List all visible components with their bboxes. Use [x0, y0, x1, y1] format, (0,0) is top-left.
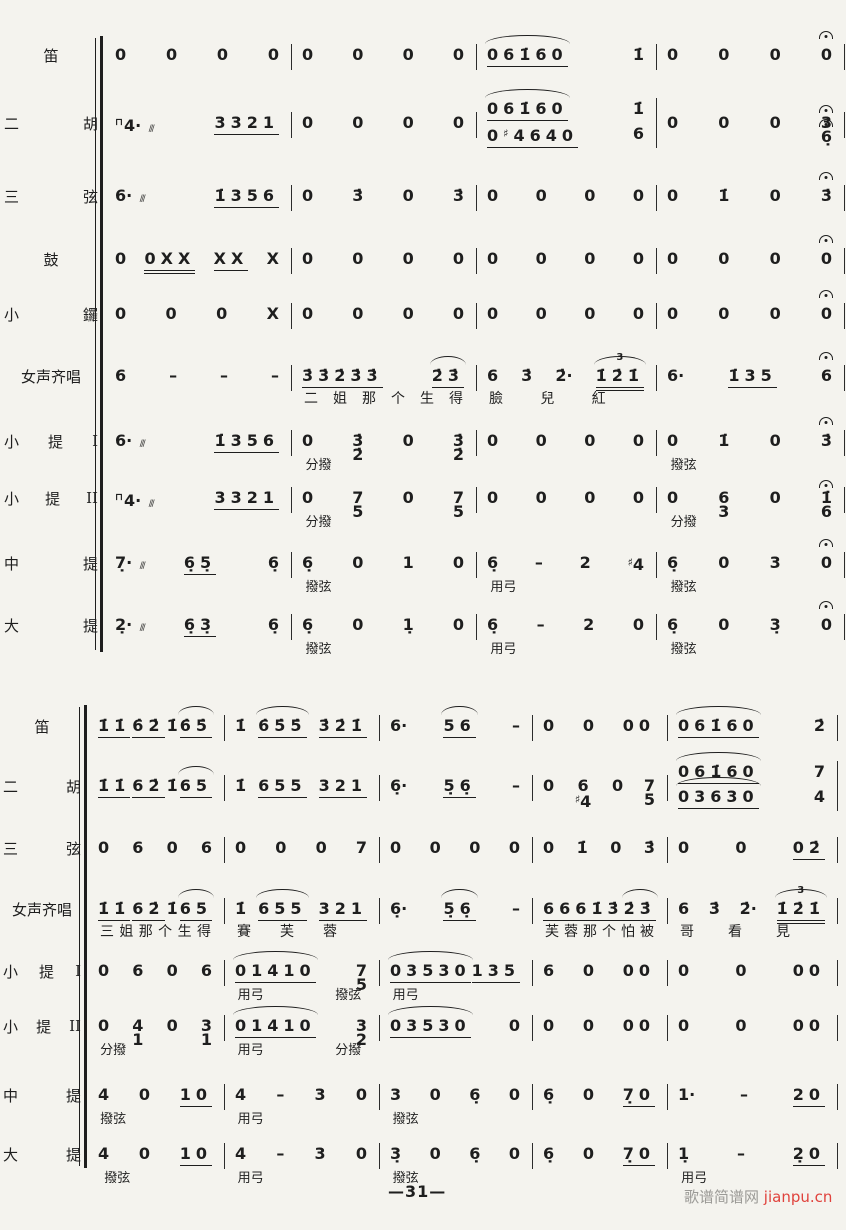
note-text: 0 — [139, 1084, 150, 1106]
note-token: 0 — [821, 44, 832, 66]
note-token: 3 — [390, 1084, 401, 1106]
note-token: 0 — [509, 1015, 520, 1037]
instrument-label-text: 二 — [4, 113, 19, 134]
note-text: 0 — [390, 837, 401, 859]
note-text: 1̣ — [403, 614, 414, 636]
lyric-syllable: 那 — [583, 921, 597, 941]
instrument-label-text: 小 — [4, 304, 19, 325]
note-text: 0 — [583, 1015, 594, 1037]
note-token: 0 — [543, 715, 554, 737]
measure: 1̇1̇62̇1̇65 — [88, 775, 225, 801]
measure: 0000 — [533, 1015, 668, 1041]
technique-annotation: 用弓 — [238, 1108, 264, 1127]
instrument-label-text: II — [86, 489, 98, 507]
measure: 06♯4075 — [533, 775, 668, 801]
note-token: 0 — [316, 837, 327, 859]
note-token: 00 — [793, 1015, 825, 1037]
note-token: 0 — [770, 487, 781, 509]
note-text: 0 — [543, 837, 554, 859]
note-text: 0 — [302, 303, 313, 325]
measure: 0000 — [657, 248, 845, 274]
note-token: 0 — [166, 44, 177, 66]
note-token: 0 — [98, 1015, 109, 1037]
measure: 0606 — [88, 837, 225, 863]
slur-arc — [676, 706, 761, 715]
tremolo-icon: ∕∕∕ — [140, 555, 145, 577]
instrument-label-text: 三 — [3, 838, 18, 859]
measure: 00XXXXX — [105, 248, 292, 274]
note-text: 3 — [315, 1084, 326, 1106]
note-text: 5̣6̣ — [443, 775, 475, 798]
technique-annotation: 撥弦 — [671, 576, 697, 595]
note-token: 0 — [633, 487, 644, 509]
note-token: 36̣ — [821, 112, 832, 144]
note-token: 2̣·∕∕∕ — [115, 614, 132, 636]
note-token: 6· — [667, 365, 684, 387]
note-token: 3321 — [214, 112, 279, 135]
measure: 00036̣ — [657, 112, 845, 138]
note-token: 0 — [770, 430, 781, 452]
note-token: 1̇ — [235, 715, 246, 737]
note-text: 03530 — [390, 1015, 471, 1038]
measure: 6̣030 — [657, 552, 845, 578]
note-token: 0 — [536, 303, 547, 325]
chord-note: 3 — [718, 505, 729, 519]
note-text: 01410 — [235, 1015, 316, 1038]
note-text: 1̇1̇ — [98, 715, 130, 738]
technique-annotation: 分撥 — [671, 511, 697, 530]
note-token: 0 — [584, 185, 595, 207]
note-token: 061̇60 — [487, 98, 568, 123]
slur-arc — [441, 889, 477, 898]
instrument-label-text: 鑼 — [83, 304, 98, 325]
note-text: 061̇60 — [487, 98, 568, 121]
note-token: 0 — [487, 248, 498, 270]
note-text: 0 — [821, 44, 832, 66]
note-token: 7̣0 — [623, 1143, 655, 1166]
chord-note: 1 — [132, 1033, 143, 1047]
note-text: 6̣5̣ — [184, 552, 216, 575]
note-token: 0 — [718, 112, 729, 134]
measure: 3̣06̣0 — [380, 1143, 533, 1169]
note-text: 1̇ — [718, 185, 729, 207]
note-text: 4 — [235, 1143, 246, 1165]
note-token: 3 — [315, 1084, 326, 1106]
note-token: ⊓4·∕∕∕ — [115, 487, 141, 512]
lyrics-line: 哥看見 — [668, 921, 838, 941]
note-text: 2̇3̇ — [432, 365, 464, 388]
note-token: 0 — [216, 303, 227, 325]
note-token: 0 — [583, 715, 594, 737]
note-text: 2̇· — [555, 365, 572, 387]
note-token: 3̇ — [521, 365, 532, 387]
note-token: 0 — [403, 185, 414, 207]
note-text: 0 — [453, 303, 464, 325]
note-text: 3̇ — [352, 185, 363, 207]
note-text: 0 — [667, 303, 678, 325]
lyrics-line: 三姐那个生得 — [88, 921, 225, 941]
note-token: 5̣6̣ — [443, 898, 475, 921]
instrument-label-text: 大 — [3, 1144, 18, 1165]
note-text: 0 — [735, 837, 746, 859]
chord-note: 5 — [644, 793, 655, 807]
note-token: 321 — [319, 898, 367, 921]
lyric-syllable: 姐 — [119, 921, 133, 941]
chord-stack: 75 — [644, 779, 655, 807]
note-token: 6 — [543, 960, 554, 982]
lyric-syllable: 芙 — [280, 921, 294, 941]
slur-arc — [485, 35, 570, 44]
note-token: – — [276, 1084, 284, 1106]
note-text: 00 — [793, 960, 825, 982]
watermark-domain: jianpu.cn — [764, 1188, 833, 1206]
note-text: 0 — [633, 487, 644, 509]
lyric-syllable: 芙 — [545, 921, 559, 941]
note-token: 0 — [469, 837, 480, 859]
measure: 6̣07̣0 — [533, 1084, 668, 1110]
note-token: 3321 — [214, 487, 279, 510]
instrument-label: 二胡 — [3, 774, 81, 798]
system-bracket — [84, 705, 87, 1168]
note-text: 0 — [543, 775, 554, 797]
note-token: 0 — [352, 112, 363, 134]
note-text: 0 — [453, 112, 464, 134]
note-token: – — [740, 1084, 748, 1106]
note-token: 6 — [487, 365, 498, 387]
note-token: 1̣ — [678, 1143, 689, 1165]
note-token: – — [512, 775, 520, 797]
note-token: 6661̇3̇ — [543, 898, 624, 921]
note-token: 0 — [352, 614, 363, 636]
note-token: 0XX — [144, 248, 195, 274]
note-token: 1 — [403, 552, 414, 574]
note-token: 6̣ — [469, 1143, 480, 1165]
note-text: 3321 — [214, 487, 279, 510]
note-text: 0 — [403, 430, 414, 452]
note-text: 0 — [487, 430, 498, 452]
note-text: 0 — [583, 960, 594, 982]
note-text: 3̇ — [821, 430, 832, 452]
note-token: 4 — [98, 1143, 109, 1165]
lyrics-line: 賽芙蓉 — [225, 921, 380, 941]
note-token: 0 — [98, 837, 109, 859]
instrument-label-text: 提 — [48, 431, 63, 452]
technique-annotation: 撥弦 — [306, 576, 332, 595]
note-text: 0 — [217, 44, 228, 66]
note-token: 75 — [352, 487, 363, 519]
note-text: 3̇2̇1̇ — [319, 715, 367, 738]
note-token: 0 — [667, 44, 678, 66]
note-text: 655 — [258, 775, 306, 798]
note-text: 0 — [678, 837, 689, 859]
note-text: 0 — [487, 303, 498, 325]
note-token: 655 — [258, 775, 306, 798]
note-token: 0 — [509, 1084, 520, 1106]
note-token: 0 — [487, 185, 498, 207]
note-text: 0 — [667, 112, 678, 134]
note-text: 4 — [98, 1084, 109, 1106]
note-text: 6̣ — [268, 614, 279, 636]
note-token: 00 — [623, 960, 655, 982]
slur-arc — [233, 1006, 318, 1015]
note-text: ⊓4· — [115, 487, 141, 512]
note-text: 7̣0 — [623, 1084, 655, 1107]
measure: 306̣0 — [380, 1084, 533, 1110]
note-text: 0 — [584, 248, 595, 270]
note-token: 3̇ — [644, 837, 655, 859]
note-text: 061̇60 — [678, 715, 759, 738]
note-token: ⊓4·∕∕∕ — [115, 112, 141, 137]
note-token: 3̇ — [709, 898, 720, 920]
note-text: 0 — [509, 837, 520, 859]
note-token: 321 — [319, 775, 367, 798]
note-token: 061̇60 — [487, 44, 568, 67]
note-text: – — [537, 614, 545, 636]
measure: 6̣01̣0 — [292, 614, 477, 640]
chord-note: 5 — [352, 505, 363, 519]
note-token: 0 — [115, 303, 126, 325]
tremolo-icon: ∕∕∕ — [140, 188, 145, 210]
note-token: 75 — [453, 487, 464, 519]
note-token: 0 — [633, 303, 644, 325]
note-token: 10 — [180, 1143, 212, 1166]
note-text: 0 — [770, 303, 781, 325]
note-token: 0 — [352, 44, 363, 66]
measure: 6̣03̣0 — [657, 614, 845, 640]
note-token: 0♯4640 — [487, 123, 578, 148]
note-text: 4 — [814, 786, 825, 808]
note-token: 7̣0 — [623, 1084, 655, 1107]
measure: 061̇607036304 — [668, 761, 838, 811]
note-token: 4 — [98, 1084, 109, 1106]
lyric-syllable: 哥 — [680, 921, 694, 941]
note-text: 0 — [821, 303, 832, 325]
note-text: ⊓4· — [115, 112, 141, 137]
note-token: 3̇ — [352, 185, 363, 207]
note-text: 0 — [139, 1143, 150, 1165]
note-text: 0 — [718, 248, 729, 270]
lyric-syllable: 賽 — [237, 921, 251, 941]
technique-annotation: 用弓 — [238, 984, 264, 1003]
note-token: 1̣ — [403, 614, 414, 636]
note-token: 0 — [487, 487, 498, 509]
note-token: 6̣3̣ — [184, 614, 216, 637]
note-text: 0 — [453, 552, 464, 574]
instrument-label: 小提II — [3, 1014, 81, 1038]
note-text: 0 — [430, 837, 441, 859]
note-text: 0 — [718, 552, 729, 574]
technique-annotation: 分撥 — [306, 454, 332, 473]
note-token: 1̇1̇ — [98, 898, 130, 921]
lyric-syllable: 見 — [776, 921, 790, 941]
note-text: 2 — [583, 614, 594, 636]
note-token: 6̣ — [268, 614, 279, 636]
note-token: 0 — [302, 303, 313, 325]
note-token: 0 — [583, 1084, 594, 1106]
note-token: 0 — [352, 248, 363, 270]
technique-annotation: 撥弦 — [671, 454, 697, 473]
instrument-label-text: II — [69, 1017, 81, 1035]
measure: 6̣07̣0 — [533, 1143, 668, 1169]
measure: 6·1̇356 — [657, 365, 845, 391]
note-token: 0 — [166, 303, 177, 325]
note-text: 6̣ — [543, 1084, 554, 1106]
note-token: 6̣ — [667, 614, 678, 636]
measure: 6·∕∕∕1̇356 — [105, 185, 292, 211]
note-token: 4 — [814, 786, 825, 811]
measure: 0000 — [292, 248, 477, 274]
note-token: 0 — [487, 430, 498, 452]
measure: 01̇03̇ — [657, 185, 845, 211]
note-token: 0 — [633, 430, 644, 452]
note-text: 0 — [667, 185, 678, 207]
note-text: 0 — [302, 112, 313, 134]
instrument-label-text: 笛 — [34, 716, 49, 737]
note-token: 2̇· — [555, 365, 572, 387]
note-token: 2̣0 — [793, 1143, 825, 1166]
note-token: 00 — [623, 715, 655, 737]
lyric-syllable: 臉 — [489, 388, 503, 408]
note-token: 63 — [718, 487, 729, 519]
note-token: 2 — [583, 614, 594, 636]
note-text: 6661̇3̇ — [543, 898, 624, 921]
instrument-label-text: 提 — [36, 1016, 51, 1037]
note-token: 0 — [509, 1143, 520, 1165]
measure: 6000 — [533, 960, 668, 986]
measure: 0606 — [88, 960, 225, 986]
instrument-label: 女声齐唱 — [4, 364, 98, 388]
note-text: 2̇· — [740, 898, 757, 920]
measure: 1·–20 — [668, 1084, 838, 1110]
note-text: 0 — [509, 1084, 520, 1106]
note-text: 6̣ — [302, 552, 313, 574]
note-token: 1̇ — [235, 898, 246, 920]
instrument-label-text: 弦 — [83, 186, 98, 207]
slur-arc — [676, 752, 761, 761]
note-token: 0 — [356, 1143, 367, 1165]
note-token: 0 — [543, 1015, 554, 1037]
sharp-icon: ♯ — [575, 793, 580, 806]
note-token: 0 — [583, 1015, 594, 1037]
note-text: 0 — [770, 112, 781, 134]
note-token: 0 — [356, 1084, 367, 1106]
note-text: 62̇ — [132, 898, 164, 921]
chord-stack: 63 — [718, 491, 729, 519]
note-text: 10 — [180, 1143, 212, 1166]
note-text: 0 — [403, 303, 414, 325]
note-token: 1̇356 — [214, 430, 279, 453]
note-token: 0 — [302, 430, 313, 452]
note-token: 6·∕∕∕ — [115, 430, 132, 452]
note-text: 1̣ — [678, 1143, 689, 1165]
note-text: X — [267, 303, 279, 325]
note-text: 65 — [180, 898, 212, 921]
note-token: 6 — [201, 837, 212, 859]
chord-note: 1 — [201, 1033, 212, 1047]
note-text: 6 — [132, 960, 143, 982]
note-text: 0 — [678, 960, 689, 982]
note-text: 00 — [623, 1015, 655, 1037]
instrument-label-text: 提 — [39, 961, 54, 982]
note-text: 0 — [275, 837, 286, 859]
note-token: 0 — [584, 248, 595, 270]
note-token: 0 — [584, 487, 595, 509]
note-token: 03530 — [390, 1015, 471, 1038]
note-text: – — [276, 1143, 284, 1165]
note-token: 0 — [390, 837, 401, 859]
note-token: 7̣·∕∕∕ — [115, 552, 132, 574]
note-text: 0 — [453, 248, 464, 270]
note-token: 0 — [268, 44, 279, 66]
note-text: 1̇356 — [214, 185, 279, 208]
note-text: 6 — [115, 365, 126, 387]
measure: 01̇03̇ — [533, 837, 668, 863]
note-text: 6̣· — [390, 775, 407, 797]
note-text: 2̣· — [115, 614, 132, 636]
note-token: 0 — [667, 112, 678, 134]
note-text: 0 — [98, 1015, 109, 1037]
note-token: 0 — [430, 1143, 441, 1165]
measure: 4–30 — [225, 1084, 380, 1110]
note-text: 03530 — [390, 960, 471, 983]
note-text: 0 — [98, 960, 109, 982]
note-text: 0 — [216, 303, 227, 325]
note-text: 00 — [623, 715, 655, 737]
note-text: 1 — [403, 552, 414, 574]
measure: 4010 — [88, 1143, 225, 1169]
measure: 6––– — [105, 365, 292, 391]
note-token: 2 — [580, 552, 591, 574]
note-text: 6 — [201, 837, 212, 859]
instrument-label-text: 小 — [3, 961, 18, 982]
note-text: 6 — [132, 837, 143, 859]
fermata-icon — [819, 480, 833, 488]
note-text: 0 — [770, 185, 781, 207]
note-token: 1· — [678, 1084, 695, 1106]
tremolo-icon: ∕∕∕ — [140, 617, 145, 639]
note-text: 1̇ — [167, 775, 178, 797]
note-token: 0 — [770, 185, 781, 207]
note-text: 0 — [583, 1084, 594, 1106]
note-token: 0 — [718, 44, 729, 66]
lyric-syllable: 三 — [100, 921, 114, 941]
note-text: 6̣ — [268, 552, 279, 574]
note-text: 1̇ — [167, 898, 178, 920]
technique-annotation: 分撥 — [100, 1039, 126, 1058]
measure: 6·56– — [380, 715, 533, 741]
note-text: 6· — [667, 365, 684, 387]
note-text: 0 — [403, 248, 414, 270]
note-text: 2̇ — [814, 715, 825, 737]
note-text: 0 — [469, 837, 480, 859]
note-text: 0 — [735, 960, 746, 982]
note-text: 6 — [487, 365, 498, 387]
note-text: 1̇1̇ — [98, 898, 130, 921]
note-text: 00 — [623, 960, 655, 982]
measure: 0000 — [380, 837, 533, 863]
instrument-label: 二胡 — [4, 111, 98, 135]
note-text: 7̣· — [115, 552, 132, 574]
note-text: 0 — [536, 185, 547, 207]
slur-arc — [441, 706, 477, 715]
note-token: 0 — [610, 837, 621, 859]
note-token: 6̣ — [667, 552, 678, 574]
note-token: 0 — [430, 837, 441, 859]
note-text: 0 — [735, 1015, 746, 1037]
tremolo-icon: ∕∕∕ — [140, 433, 145, 455]
chord-stack: 3̇2̇ — [352, 434, 363, 462]
lyric-syllable: 那 — [362, 388, 376, 408]
